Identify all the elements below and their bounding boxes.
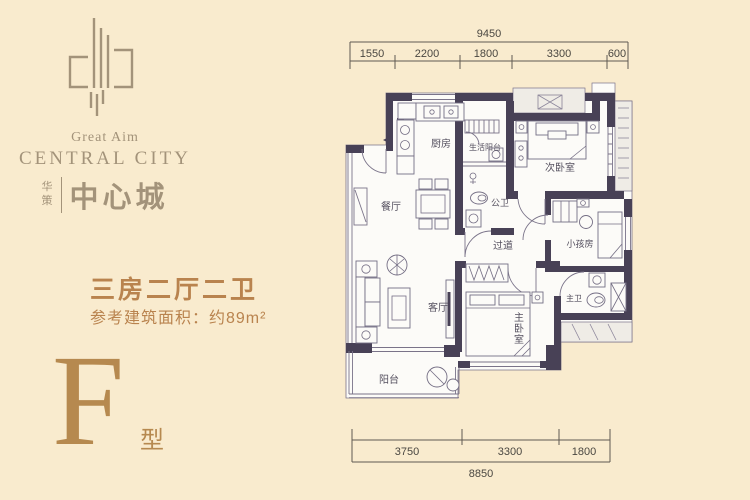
dim-top-seg-1: 1550	[360, 48, 384, 60]
dim-bottom-seg-1: 3750	[395, 446, 419, 458]
room-label-second-bedroom: 次卧室	[545, 161, 575, 174]
room-label-kids-room: 小孩房	[566, 238, 593, 249]
floorplan-drawing: 厨房 生活阳台 次卧室 餐厅 公卫 过道 小孩房 客厅 主卧室 主卫 阳台 94…	[0, 0, 750, 500]
room-label-living-room: 客厅	[428, 301, 448, 314]
room-label-dining-room: 餐厅	[381, 200, 401, 213]
room-label-master-bedroom: 主卧室	[512, 312, 524, 345]
dim-top-seg-5: 600	[608, 48, 626, 60]
dim-top-seg-3: 1800	[474, 48, 498, 60]
dim-bottom-seg-3: 1800	[572, 446, 596, 458]
dim-top-seg-2: 2200	[415, 48, 439, 60]
dim-top-total: 9450	[477, 28, 501, 40]
room-label-master-bathroom: 主卫	[566, 293, 582, 303]
room-label-corridor: 过道	[493, 239, 513, 252]
dim-bottom-total: 8850	[469, 468, 493, 480]
floorplan-page: Great Aim CENTRAL CITY 华策 中心城 三房二厅二卫 参考建…	[0, 0, 750, 500]
room-label-service-balcony: 生活阳台	[469, 142, 501, 152]
room-label-balcony: 阳台	[379, 373, 399, 386]
room-label-kitchen: 厨房	[431, 137, 451, 150]
dim-top-seg-4: 3300	[547, 48, 571, 60]
dim-bottom-seg-2: 3300	[498, 446, 522, 458]
room-label-public-bathroom: 公卫	[491, 198, 509, 208]
